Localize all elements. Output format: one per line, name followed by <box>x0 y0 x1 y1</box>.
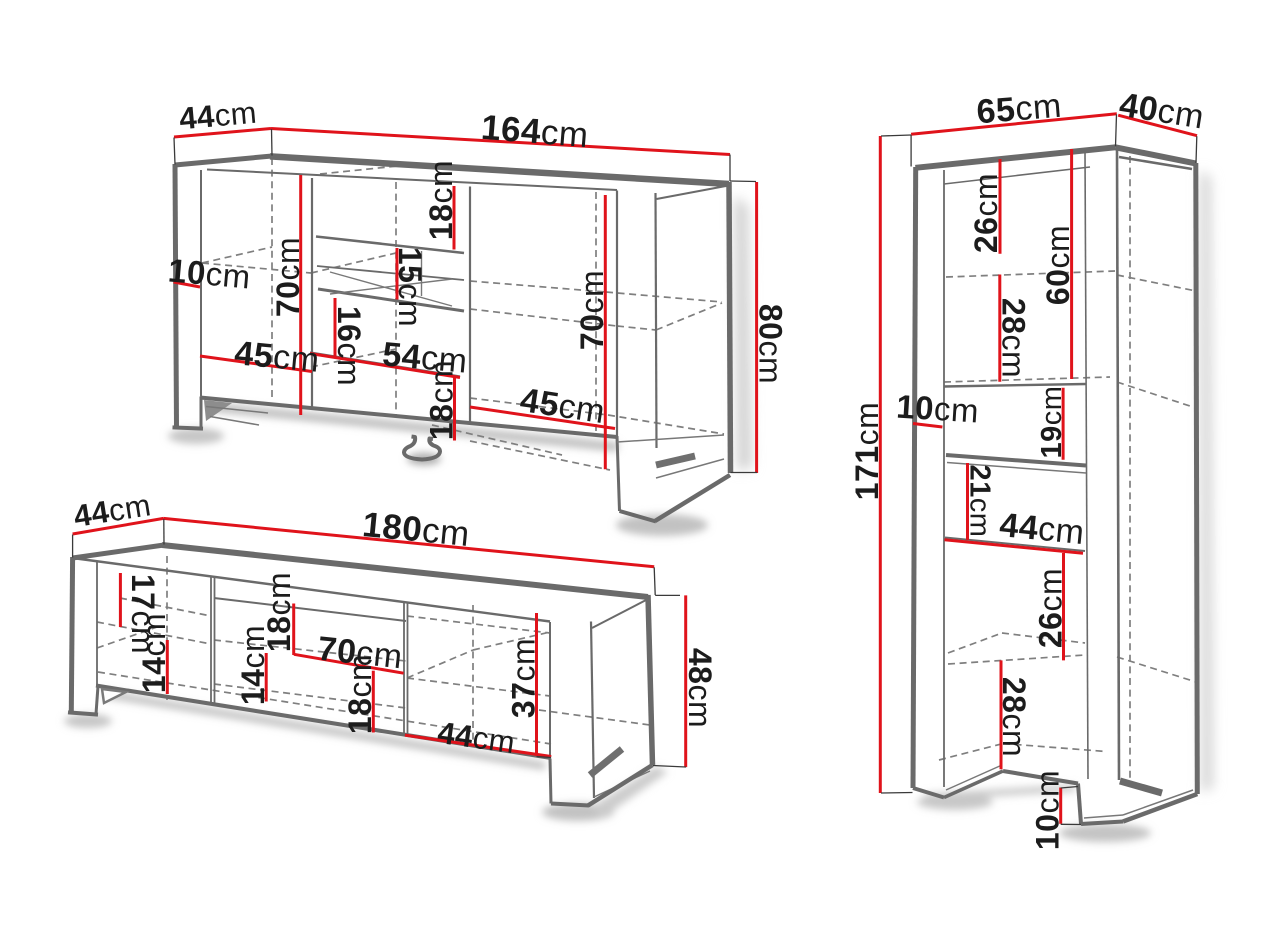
svg-text:26cm: 26cm <box>1033 568 1069 648</box>
svg-text:14cm: 14cm <box>136 613 172 693</box>
svg-text:18cm: 18cm <box>342 654 378 734</box>
svg-text:171cm: 171cm <box>849 402 885 501</box>
svg-text:28cm: 28cm <box>996 677 1032 757</box>
svg-text:15cm: 15cm <box>392 247 428 327</box>
svg-text:80cm: 80cm <box>753 304 789 384</box>
svg-text:10cm: 10cm <box>895 388 980 430</box>
svg-text:60cm: 60cm <box>1040 225 1076 305</box>
svg-text:14cm: 14cm <box>235 625 271 705</box>
svg-text:16cm: 16cm <box>331 306 367 386</box>
svg-text:65cm: 65cm <box>975 87 1063 132</box>
svg-text:21cm: 21cm <box>964 465 996 538</box>
svg-text:44cm: 44cm <box>178 95 259 137</box>
svg-text:10cm: 10cm <box>167 252 253 296</box>
svg-text:10cm: 10cm <box>1030 770 1066 850</box>
svg-text:26cm: 26cm <box>968 173 1004 253</box>
svg-text:28cm: 28cm <box>996 298 1032 378</box>
svg-text:18cm: 18cm <box>424 360 460 440</box>
svg-text:18cm: 18cm <box>423 160 459 240</box>
svg-text:37cm: 37cm <box>506 638 542 718</box>
svg-text:19cm: 19cm <box>1036 386 1068 459</box>
svg-text:48cm: 48cm <box>682 648 718 728</box>
svg-text:70cm: 70cm <box>270 237 306 317</box>
svg-text:44cm: 44cm <box>998 506 1086 552</box>
svg-text:45cm: 45cm <box>233 334 321 380</box>
svg-text:70cm: 70cm <box>574 270 610 350</box>
